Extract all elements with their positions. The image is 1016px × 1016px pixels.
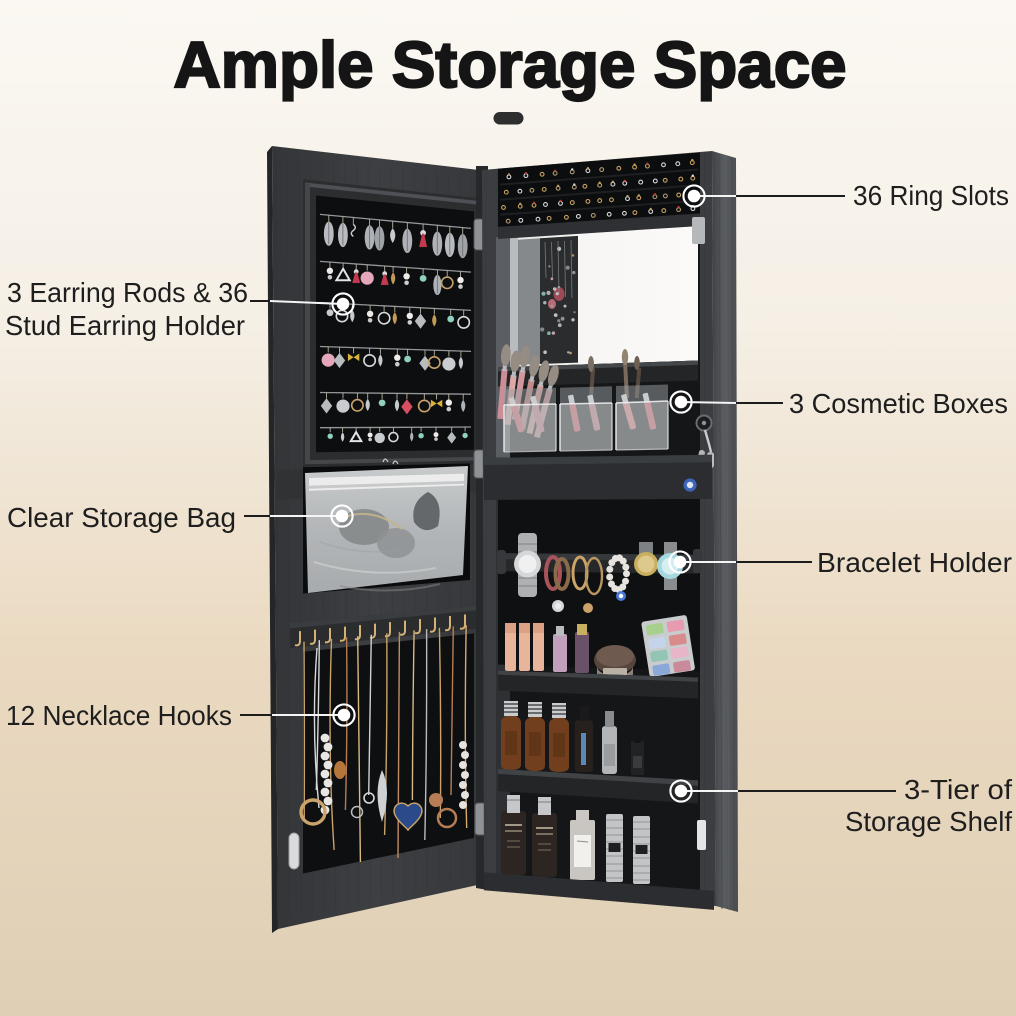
svg-text:36 Ring Slots: 36 Ring Slots [853, 180, 1009, 211]
svg-text:Ample Storage Space: Ample Storage Space [174, 28, 847, 101]
svg-text:12 Necklace Hooks: 12 Necklace Hooks [6, 700, 232, 731]
svg-text:3 Earring Rods & 36: 3 Earring Rods & 36 [7, 277, 248, 308]
svg-text:Stud Earring Holder: Stud Earring Holder [5, 310, 245, 341]
svg-text:3-Tier of: 3-Tier of [904, 774, 1012, 805]
svg-text:Storage Shelf: Storage Shelf [845, 806, 1012, 837]
svg-text:3 Cosmetic Boxes: 3 Cosmetic Boxes [789, 388, 1008, 419]
svg-text:Bracelet Holder: Bracelet Holder [817, 547, 1012, 578]
svg-text:Clear Storage Bag: Clear Storage Bag [7, 502, 236, 533]
